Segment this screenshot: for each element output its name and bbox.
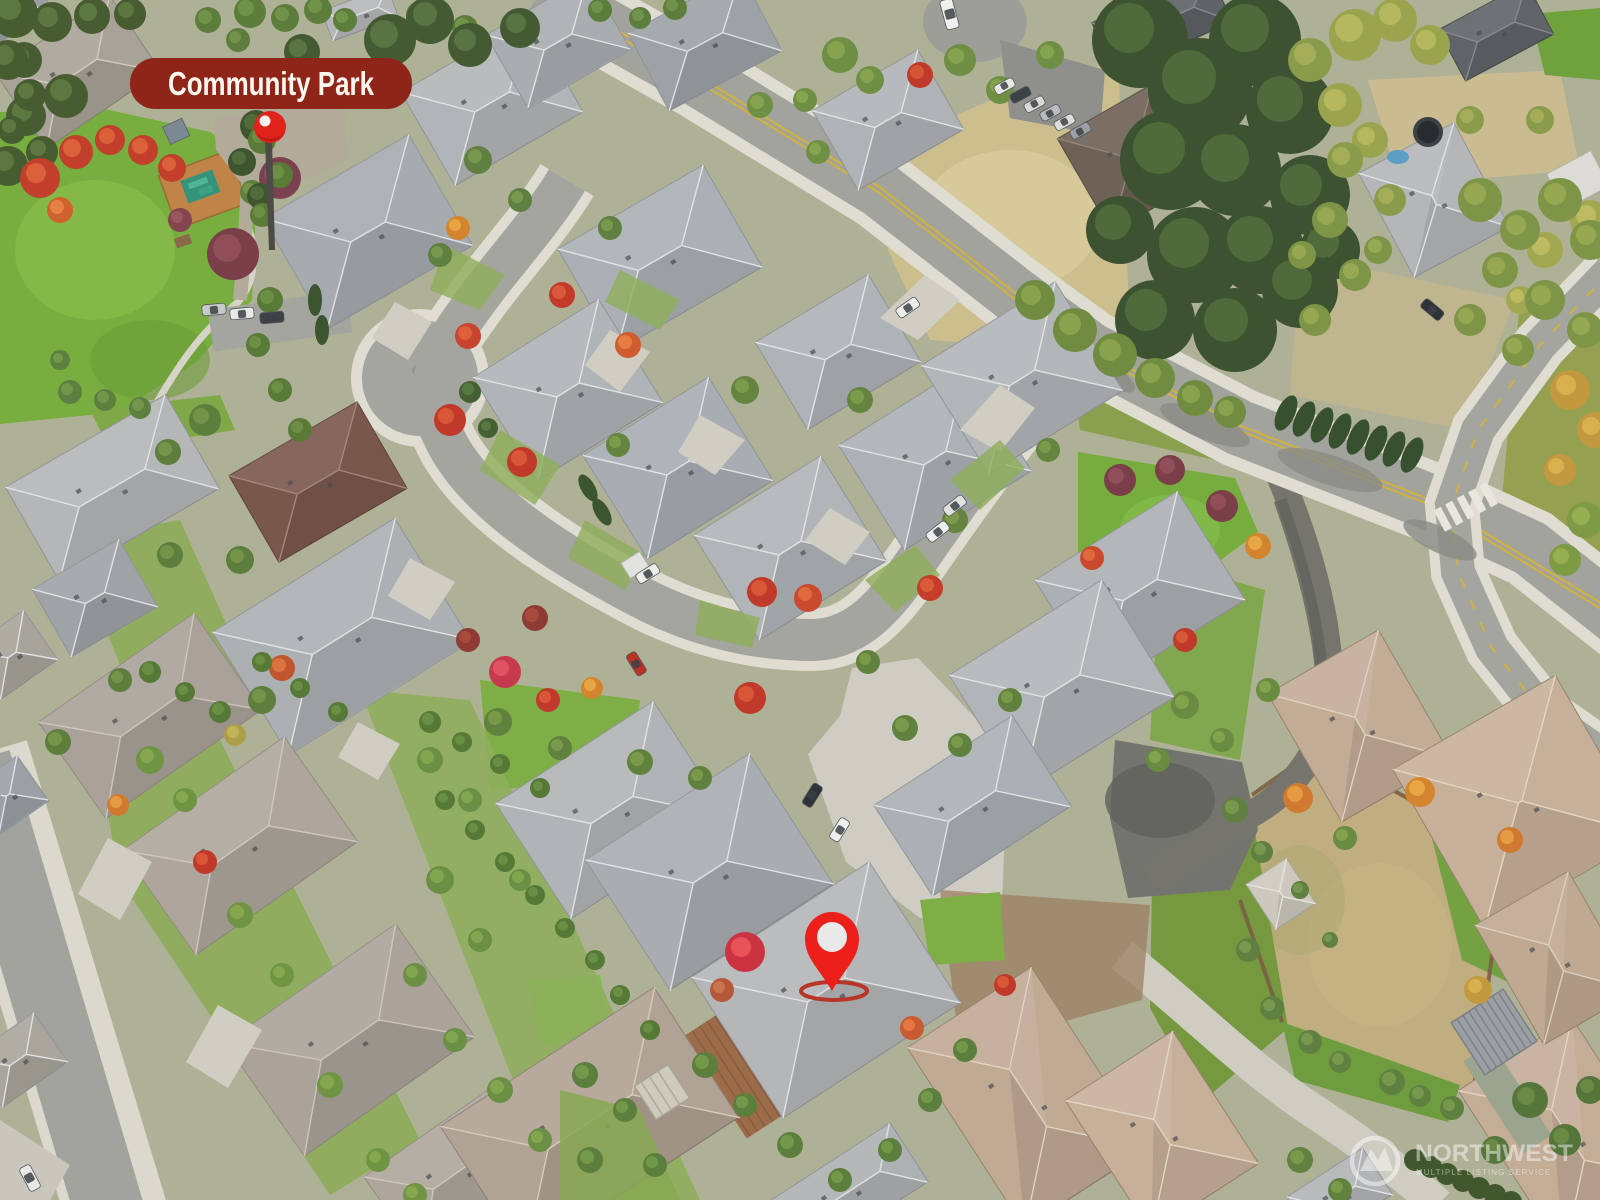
svg-text:MULTIPLE LISTING SERVICE: MULTIPLE LISTING SERVICE bbox=[1416, 1168, 1551, 1177]
svg-text:NORTHWEST: NORTHWEST bbox=[1415, 1140, 1573, 1167]
svg-text:Community Park: Community Park bbox=[168, 65, 375, 102]
